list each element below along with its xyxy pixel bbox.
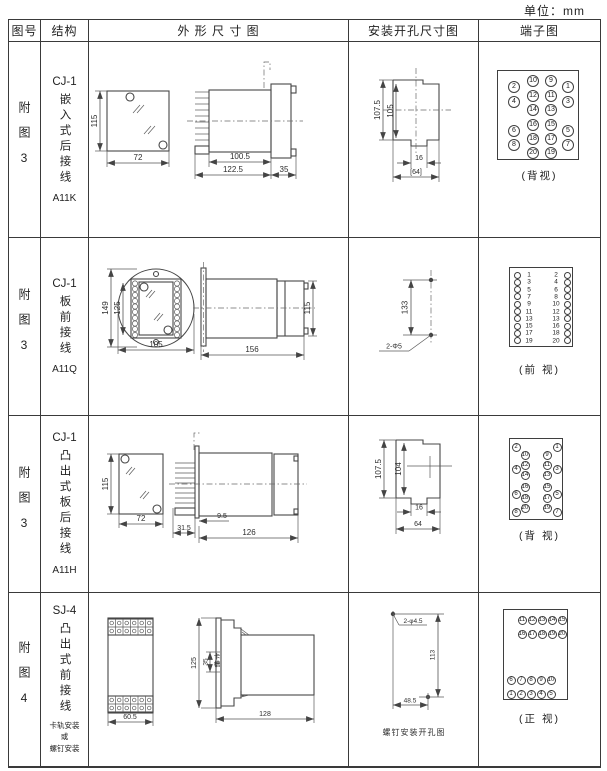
terminal-11: 11 [545,90,557,102]
dim-156: 156 [245,345,259,354]
model-label: CJ-1 [52,76,76,88]
terminal-diagram-front-view: 1112131415161718192067891012345 [503,609,568,700]
terminal-17: 17 [545,133,557,145]
terminal-caption: (背 视) [479,528,600,543]
row4-install-drawing: 2-φ4.5 113 48.5 螺钉安装开孔图 [349,593,478,765]
terminal-number-5: 5 [527,286,531,293]
terminal-2: 2 [508,81,520,93]
dim-48-5: 48.5 [404,698,417,705]
terminal-14: 14 [521,471,530,480]
terminal-number-11: 11 [526,308,533,315]
terminal-6: 6 [508,125,520,137]
terminal-hole [514,308,521,315]
terminal-number-4: 4 [554,279,558,286]
terminal-number-17: 17 [525,330,532,337]
dimension-table: 图号 结构 外 形 尺 寸 图 安装开孔尺寸图 端子图 附图3 CJ-1 嵌入式… [8,19,601,768]
side-view: 9.5 31.5 126 [169,433,307,543]
terminal-hole [564,293,571,300]
dim-126: 126 [242,528,256,537]
dim-105: 105 [149,340,163,349]
terminal-15: 15 [543,483,552,492]
terminal-number-9: 9 [527,301,531,308]
terminal-number-1: 1 [527,272,531,279]
terminal-number-13: 13 [525,315,532,322]
terminal-number-16: 16 [552,323,559,330]
terminal-hole [564,337,571,344]
install-caption: 螺钉安装开孔图 [383,727,446,737]
row4-terminal-cell: 1112131415161718192067891012345 (正 视) [479,593,600,766]
terminal-diagram-back-view: 2110912114314131615651817201987 [509,438,563,520]
terminal-hole [564,330,571,337]
side-view: 100.5 122.5 35 [187,62,303,179]
terminal-9: 9 [545,75,557,87]
terminal-8: 8 [512,508,521,517]
terminal-3: 3 [527,690,536,699]
dim-64: 64 [414,521,422,528]
dim-72: 72 [137,514,146,523]
dim-16: 16 [415,505,423,512]
row2-fig-no: 附图3 [9,238,41,416]
terminal-hole [514,272,521,279]
row3-structure: CJ-1 凸出式板后接线 A11H [41,416,89,593]
row2-outline-drawing: 149 125 105 [89,238,348,415]
terminal-9: 9 [543,451,552,460]
header-structure-label: 结构 [51,22,77,39]
hole-label: 2-Φ5 [386,344,402,351]
terminal-20: 20 [527,147,539,159]
terminal-hole [514,315,521,322]
mount-note: 卡轨安装 或 螺钉安装 [50,720,80,755]
row1-fig-no: 附图3 [9,42,41,238]
terminal-hole [564,308,571,315]
terminal-hole [564,323,571,330]
terminal-hole [564,301,571,308]
terminal-18: 18 [538,630,547,639]
row4-fig-no: 附图4 [9,593,41,766]
terminal-number-12: 12 [552,308,559,315]
terminal-16: 16 [527,119,539,131]
dim-64: [64] [410,169,422,176]
row2-terminal-cell: 1234567891011121313151617181920 (前 视) [479,238,600,416]
dim-31-5: 31.5 [177,525,191,532]
row3-outline-cell: 115 72 [89,416,349,593]
terminal-9: 9 [537,676,546,685]
structure-desc: 凸出式板后接线 [57,449,73,558]
row2-install-cell: 133 2-Φ5 [349,238,479,416]
front-view: 60.5 [108,618,153,726]
dim-107-5: 107.5 [374,458,383,479]
dim-115: 115 [303,301,312,314]
terminal-19: 19 [545,147,557,159]
terminal-5: 5 [562,125,574,137]
terminal-20: 20 [558,630,567,639]
terminal-hole [514,330,521,337]
dim-125: 125 [191,657,198,669]
terminal-hole [514,293,521,300]
terminal-caption: (正 视) [479,711,600,726]
terminal-number-18: 18 [552,330,559,337]
terminal-number-8: 8 [554,293,558,300]
terminal-4: 4 [508,96,520,108]
front-view: 115 72 [90,91,169,167]
terminal-number-19: 19 [525,337,532,344]
dim-104: 104 [394,462,403,476]
dim-122-5: 122.5 [223,165,244,174]
terminal-19: 19 [543,504,552,513]
terminal-2: 2 [512,443,521,452]
terminal-7: 7 [517,676,526,685]
terminal-11: 11 [543,461,552,470]
terminal-number-15: 15 [525,323,532,330]
fig-no-label: 附图3 [16,288,33,365]
row1-outline-drawing: 115 72 [89,42,348,237]
terminal-1: 1 [553,443,562,452]
terminal-4: 4 [537,690,546,699]
dim-60-5: 60.5 [123,714,137,721]
mount-line-3: 螺钉安装 [50,743,80,755]
terminal-number-20: 20 [552,337,559,344]
terminal-7: 7 [553,508,562,517]
model-label: CJ-1 [52,278,76,290]
terminal-13: 13 [545,104,557,116]
row1-install-cell: 107.5 105 16 [64] [349,42,479,238]
row4-outline-drawing: 60.5 125 35 [89,593,348,765]
terminal-12: 12 [521,461,530,470]
terminal-3: 3 [562,96,574,108]
terminal-number-7: 7 [527,293,531,300]
terminal-hole [564,286,571,293]
dim-72: 72 [134,153,143,162]
terminal-hole [514,323,521,330]
row4-structure: SJ-4 凸出式前接线 卡轨安装 或 螺钉安装 [41,593,89,766]
terminal-hole [564,315,571,322]
dim-105: 105 [386,104,395,118]
structure-desc: 嵌入式后接线 [57,93,73,186]
header-terminal-label: 端子图 [520,22,559,39]
row1-structure: CJ-1 嵌入式后接线 A11K [41,42,89,238]
terminal-11: 11 [518,616,527,625]
dim-35: 35 [280,165,289,174]
terminal-hole [514,301,521,308]
terminal-hole [564,272,571,279]
row3-terminal-cell: 2110912114314131615651817201987 (背 视) [479,416,600,593]
terminal-13: 13 [538,616,547,625]
dim-9-5: 9.5 [217,513,227,520]
terminal-12: 12 [527,90,539,102]
terminal-5: 5 [547,690,556,699]
terminal-18: 18 [521,494,530,503]
row3-install-cell: 107.5 104 16 64 [349,416,479,593]
terminal-hole [514,279,521,286]
terminal-10: 10 [521,451,530,460]
row4-outline-cell: 60.5 125 35 [89,593,349,766]
dim-115: 115 [90,114,99,127]
terminal-number-13: 13 [552,315,559,322]
terminal-caption: (背视) [479,168,600,183]
dim-133: 133 [401,300,410,314]
structure-code: A11Q [52,364,77,375]
terminal-5: 5 [553,490,562,499]
structure-desc: 板前接线 [57,295,73,357]
fig-no-label: 附图4 [16,641,33,718]
terminal-14: 14 [548,616,557,625]
row1-install-drawing: 107.5 105 16 [64] [349,42,478,237]
terminal-8: 8 [527,676,536,685]
terminal-number-6: 6 [554,286,558,293]
header-install: 安装开孔尺寸图 [349,20,479,42]
terminal-10: 10 [527,75,539,87]
dim-16: 16 [415,155,423,162]
terminal-caption: (前 视) [479,362,600,377]
terminal-20: 20 [521,504,530,513]
structure-code: A11K [53,193,77,204]
front-view: 115 72 [101,454,163,528]
terminal-17: 17 [543,494,552,503]
terminal-number-3: 3 [527,279,531,286]
terminal-19: 19 [548,630,557,639]
terminal-4: 4 [512,465,521,474]
header-fig-no: 图号 [9,20,41,42]
dim-35: 35 [203,658,210,666]
header-fig-no-label: 图号 [11,22,37,39]
header-terminal: 端子图 [479,20,600,42]
terminal-1: 1 [507,690,516,699]
dim-149: 149 [101,301,110,315]
mount-line-1: 卡轨安装 [50,720,80,732]
header-outline: 外 形 尺 寸 图 [89,20,349,42]
terminal-13: 13 [543,471,552,480]
structure-desc: 凸出式前接线 [57,622,73,715]
dim-125: 125 [113,301,122,315]
terminal-8: 8 [508,139,520,151]
terminal-number-10: 10 [552,301,559,308]
header-structure: 结构 [41,20,89,42]
terminal-14: 14 [527,104,539,116]
terminal-18: 18 [527,133,539,145]
terminal-3: 3 [553,465,562,474]
row2-outline-cell: 149 125 105 [89,238,349,416]
row3-fig-no: 附图3 [9,416,41,593]
slot-label: 卡槽 [210,653,220,668]
row2-install-drawing: 133 2-Φ5 [349,238,478,415]
side-view: 125 35 128 [191,618,314,723]
terminal-12: 12 [528,616,537,625]
terminal-1: 1 [562,81,574,93]
row1-terminal-cell: 1092112114314131615651817872019 (背视) [479,42,600,238]
manual-page: 单位：mm 图号 结构 外 形 尺 寸 图 安装开孔尺寸图 端子图 附图3 CJ… [0,0,607,771]
terminal-10: 10 [547,676,556,685]
header-install-label: 安装开孔尺寸图 [368,22,459,39]
terminal-diagram-back-view: 1092112114314131615651817872019 [497,70,579,160]
row1-outline-cell: 115 72 [89,42,349,238]
terminal-2: 2 [517,690,526,699]
model-label: CJ-1 [52,432,76,444]
model-label: SJ-4 [53,605,77,617]
hole-label: 2-φ4.5 [403,618,422,625]
terminal-number-2: 2 [554,272,558,279]
terminal-7: 7 [562,139,574,151]
fig-no-label: 附图3 [16,101,33,178]
terminal-16: 16 [521,483,530,492]
terminal-16: 16 [518,630,527,639]
structure-code: A11H [52,565,76,576]
terminal-15: 15 [558,616,567,625]
fig-no-label: 附图3 [16,466,33,543]
terminal-17: 17 [528,630,537,639]
terminal-6: 6 [507,676,516,685]
terminal-15: 15 [545,119,557,131]
row4-install-cell: 2-φ4.5 113 48.5 螺钉安装开孔图 [349,593,479,766]
dim-107-5: 107.5 [373,99,382,120]
dim-100-5: 100.5 [230,152,251,161]
dim-115: 115 [101,477,110,490]
side-view: 156 115 [193,262,317,360]
terminal-hole [514,286,521,293]
row3-install-drawing: 107.5 104 16 64 [349,416,478,592]
row2-structure: CJ-1 板前接线 A11Q [41,238,89,416]
header-outline-label: 外 形 尺 寸 图 [177,22,259,39]
terminal-hole [514,337,521,344]
terminal-6: 6 [512,490,521,499]
front-view: 149 125 105 [101,269,194,354]
unit-label: 单位：mm [524,2,585,19]
terminal-diagram-front-view: 1234567891011121313151617181920 [509,267,573,347]
dim-128: 128 [259,711,271,718]
mount-line-2: 或 [50,731,80,743]
row3-outline-drawing: 115 72 [89,416,348,592]
terminal-hole [564,279,571,286]
dim-113: 113 [430,649,437,660]
